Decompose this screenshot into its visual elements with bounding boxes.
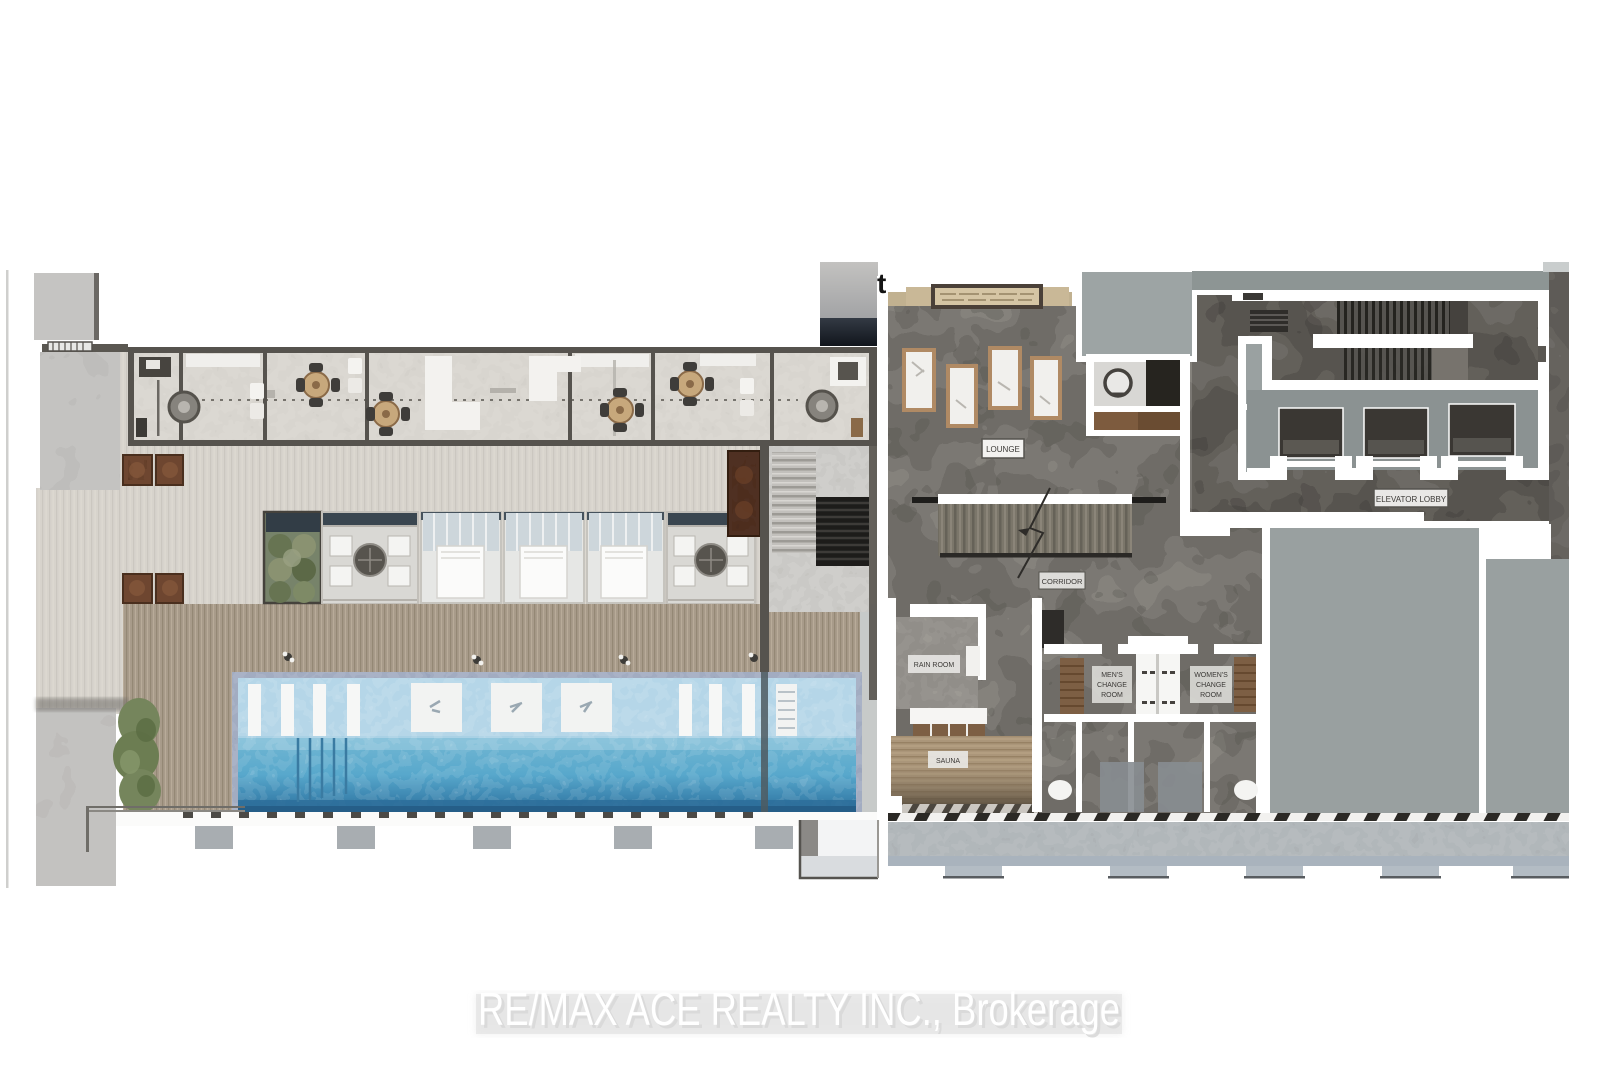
svg-text:WOMEN'S: WOMEN'S bbox=[1194, 672, 1228, 679]
svg-text:MEN'S: MEN'S bbox=[1101, 672, 1123, 679]
svg-text:RAIN ROOM: RAIN ROOM bbox=[914, 662, 955, 669]
svg-text:LOUNGE: LOUNGE bbox=[986, 445, 1020, 454]
svg-text:RE/MAX ACE REALTY INC., Broker: RE/MAX ACE REALTY INC., Brokerage bbox=[478, 983, 1120, 1035]
svg-text:CHANGE: CHANGE bbox=[1097, 682, 1127, 689]
svg-text:SAUNA: SAUNA bbox=[936, 758, 960, 765]
svg-text:ROOM: ROOM bbox=[1200, 692, 1222, 699]
svg-text:ELEVATOR LOBBY: ELEVATOR LOBBY bbox=[1376, 495, 1447, 504]
svg-text:CORRIDOR: CORRIDOR bbox=[1042, 577, 1083, 586]
svg-text:ROOM: ROOM bbox=[1101, 692, 1123, 699]
svg-text:CHANGE: CHANGE bbox=[1196, 682, 1226, 689]
svg-text:t: t bbox=[877, 268, 886, 299]
